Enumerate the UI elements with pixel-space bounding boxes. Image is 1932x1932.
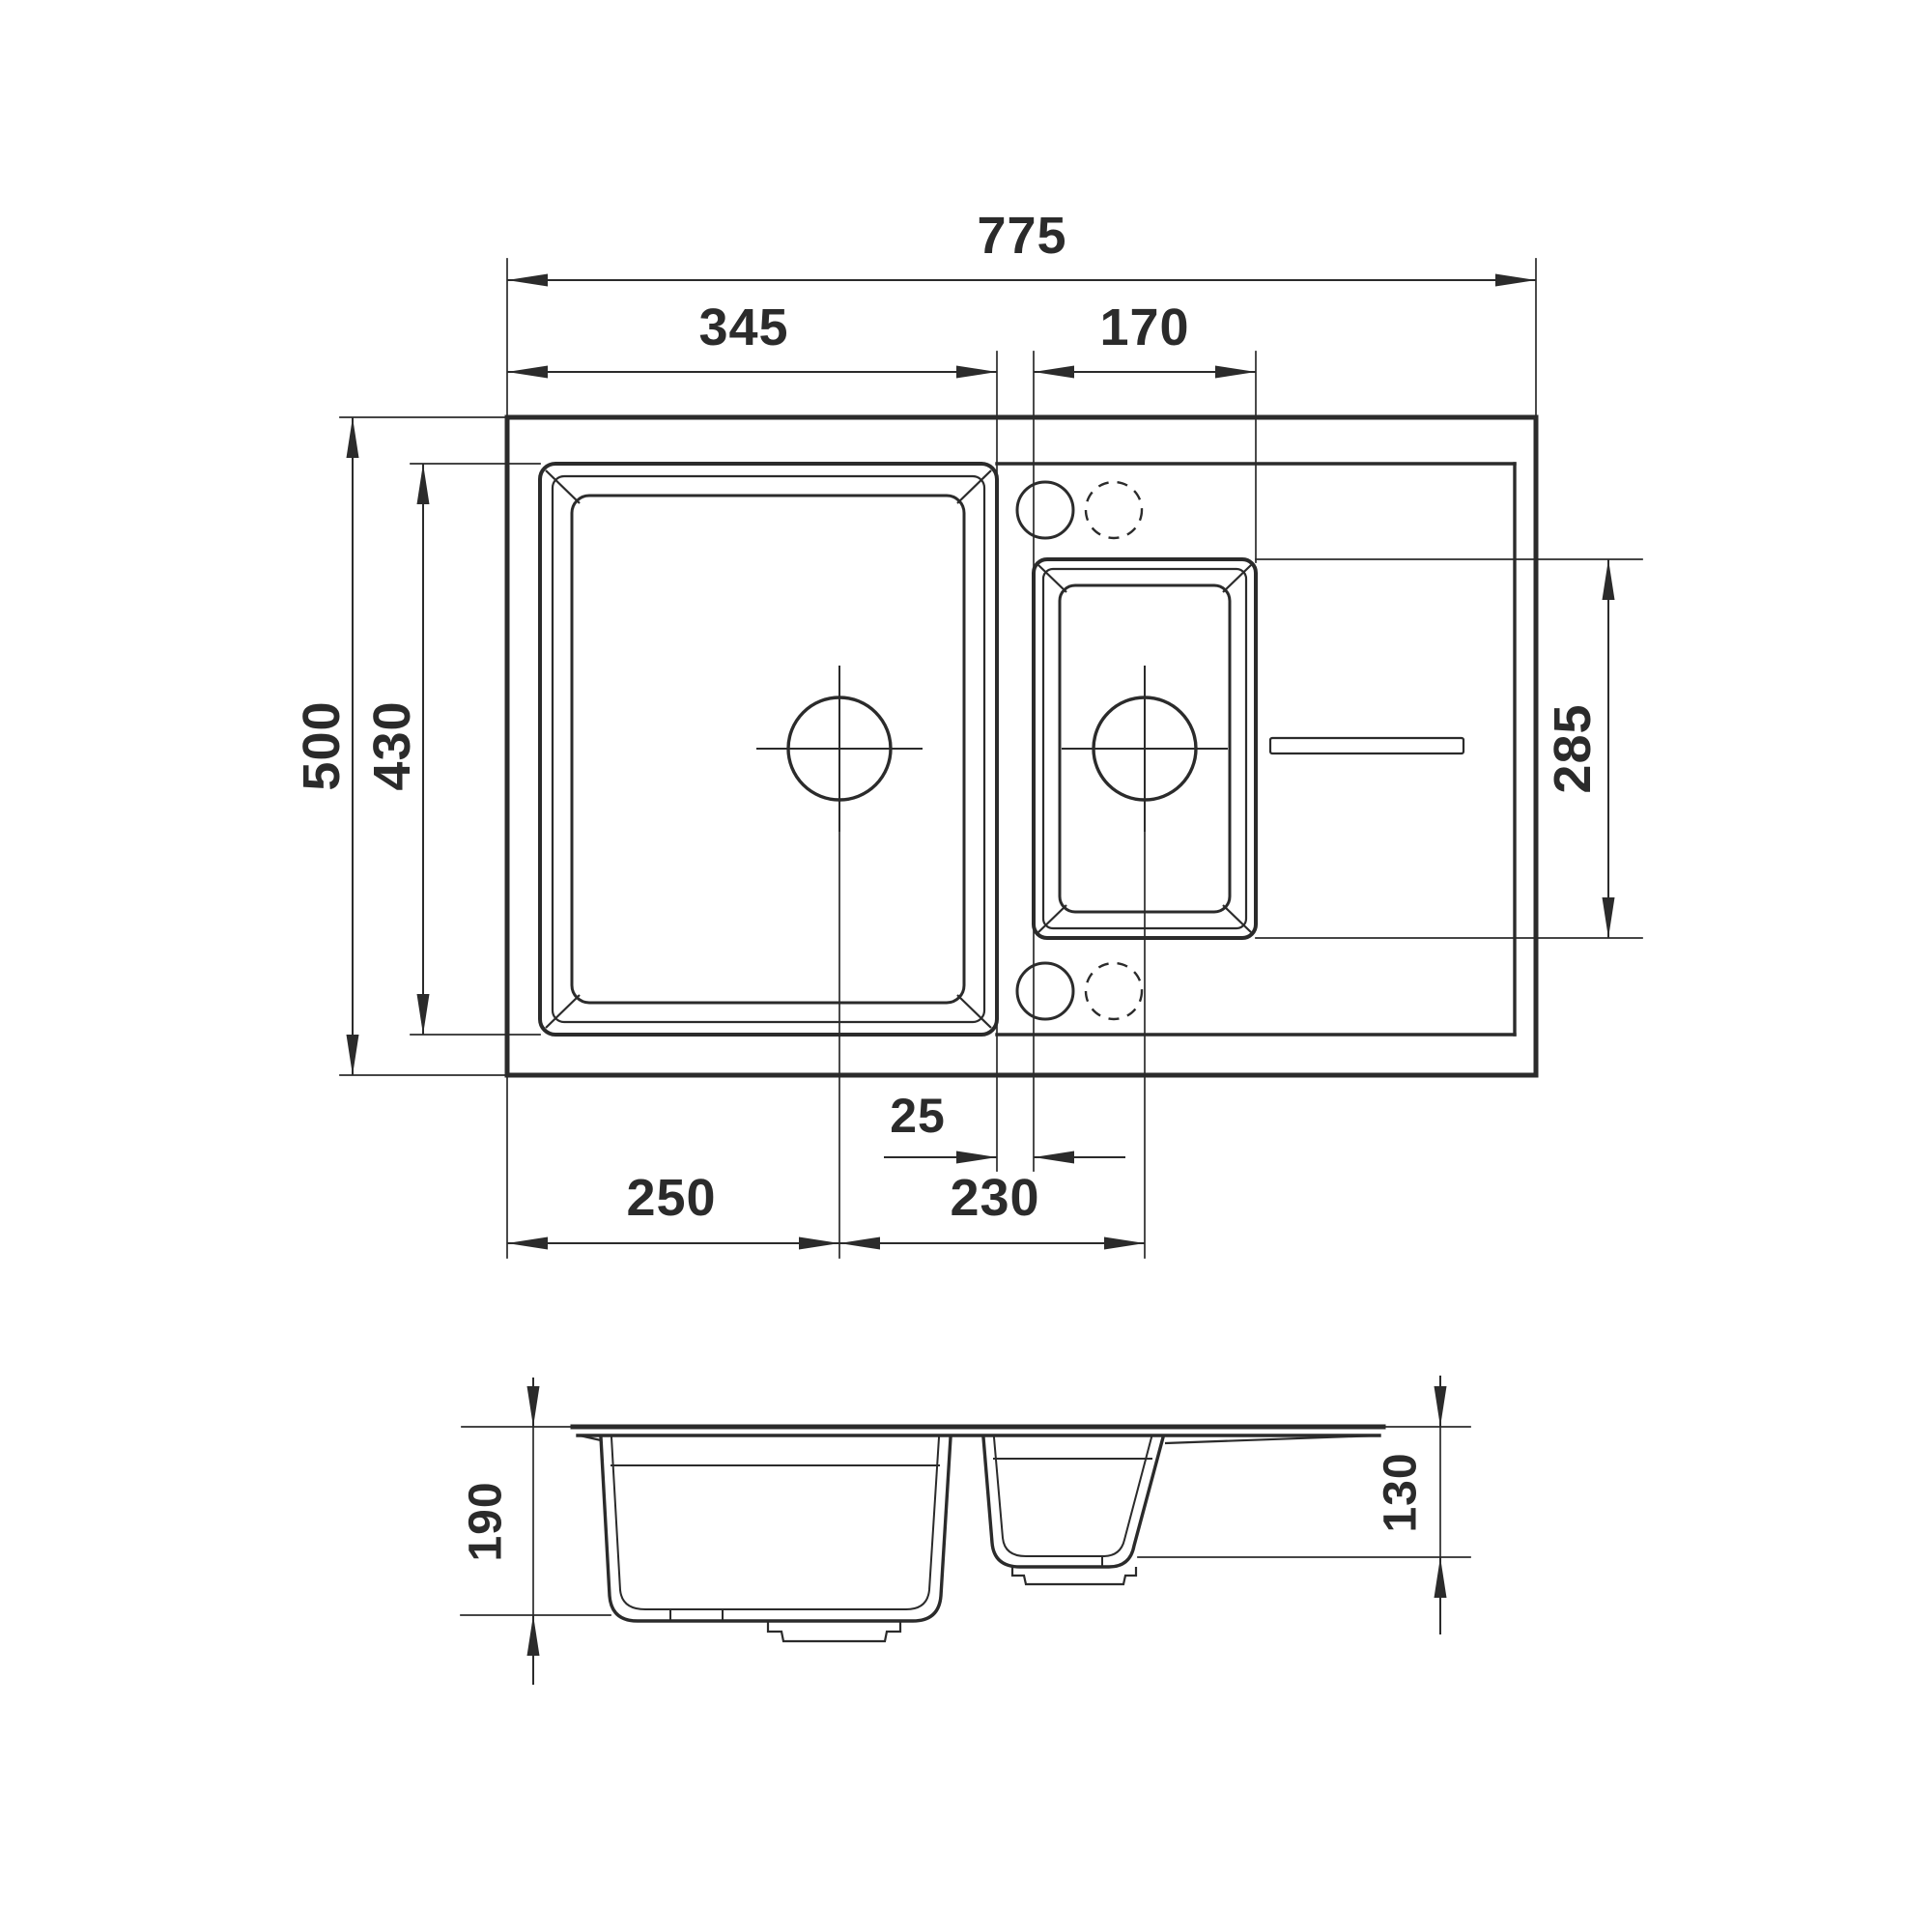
tap-hole-top-optional — [1086, 482, 1142, 538]
small-bowl-inner-wall — [994, 1437, 1151, 1556]
main-bowl — [540, 464, 997, 1035]
main-bowl-inner-wall — [611, 1437, 939, 1609]
main-drain-boss — [768, 1621, 900, 1641]
dim-130: 130 — [1376, 1376, 1441, 1634]
tap-hole-bottom — [1017, 963, 1073, 1019]
top-view: 775 345 170 500 430 285 25 250 230 — [293, 207, 1642, 1258]
main-bowl-section — [601, 1437, 951, 1641]
side-view: 190 130 — [461, 1376, 1471, 1685]
dim-label-230: 230 — [950, 1169, 1039, 1227]
small-bowl-section — [983, 1437, 1163, 1584]
small-bowl-outer-wall — [983, 1437, 1163, 1567]
top-view-dimensions: 775 345 170 500 430 285 25 250 230 — [293, 207, 1608, 1243]
dim-label-250: 250 — [626, 1169, 716, 1227]
dim-label-190: 190 — [461, 1481, 512, 1561]
tap-hole-top — [1017, 482, 1073, 538]
dim-label-345: 345 — [698, 298, 788, 356]
dim-label-130: 130 — [1376, 1452, 1427, 1532]
tap-hole-bottom-optional — [1086, 963, 1142, 1019]
sink-technical-drawing: 775 345 170 500 430 285 25 250 230 — [0, 0, 1932, 1932]
dim-label-285: 285 — [1544, 703, 1602, 793]
dim-label-430: 430 — [363, 700, 421, 790]
small-drain-boss — [1012, 1567, 1136, 1584]
dim-label-500: 500 — [293, 700, 351, 790]
dim-label-170: 170 — [1099, 298, 1189, 356]
dim-190: 190 — [461, 1378, 534, 1685]
dim-label-775: 775 — [977, 207, 1066, 265]
top-view-extension-lines — [340, 259, 1642, 1258]
dim-label-25: 25 — [890, 1089, 946, 1143]
drainboard-groove — [1270, 738, 1463, 753]
